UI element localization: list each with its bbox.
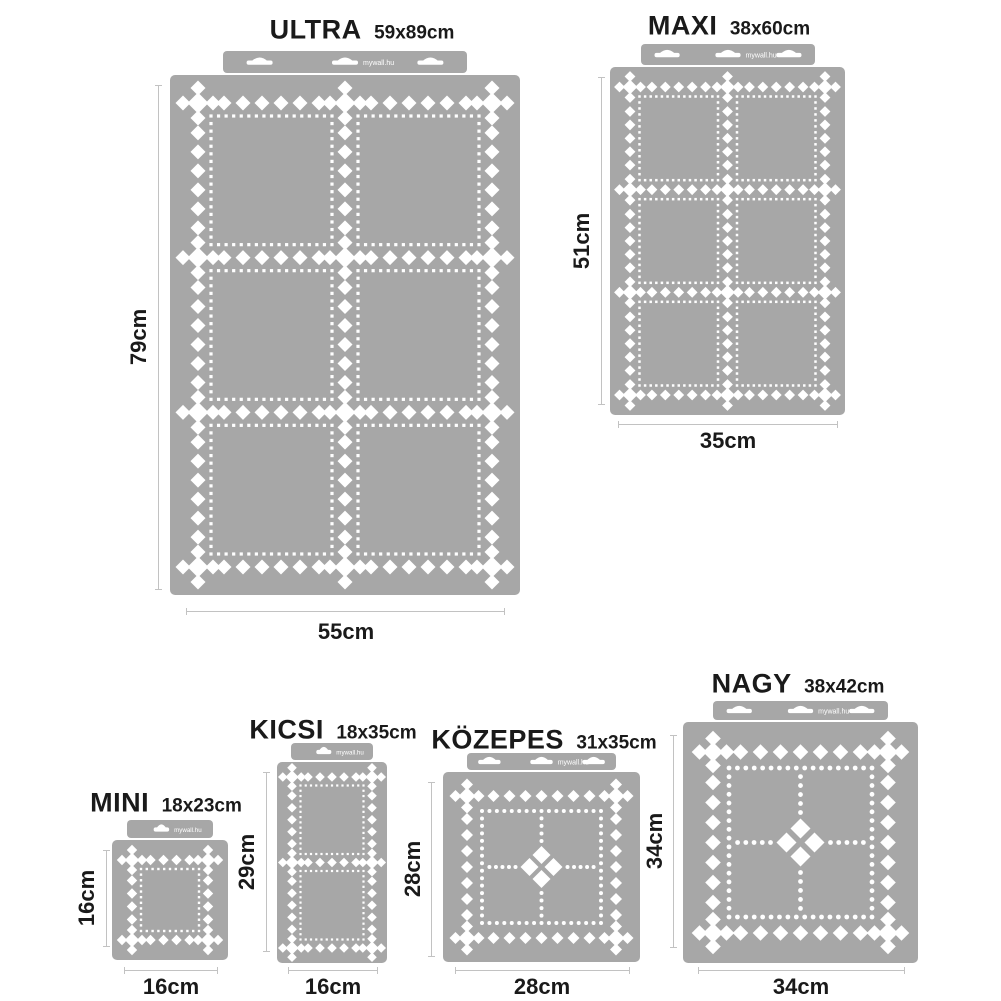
size-chart-canvas: ULTRA 59x89cm mywall.hu 79cm 55cm MAXI 3…	[0, 0, 1001, 1001]
height-dimension-label: 34cm	[642, 813, 668, 869]
width-dimension-line	[698, 970, 905, 971]
width-dimension-label: 34cm	[773, 974, 829, 1000]
stencil-body	[683, 722, 918, 963]
stencil-size: 38x42cm	[804, 677, 884, 698]
stencil-nagy: NAGY 38x42cm mywall.hu 34cm 34cm	[0, 0, 1001, 1001]
brand-label: mywall.hu	[818, 708, 849, 715]
height-dimension-line	[673, 735, 674, 948]
stencil-title: NAGY 38x42cm	[712, 669, 885, 700]
hanger-tab: mywall.hu	[713, 701, 888, 720]
stencil-name: NAGY	[712, 669, 792, 699]
